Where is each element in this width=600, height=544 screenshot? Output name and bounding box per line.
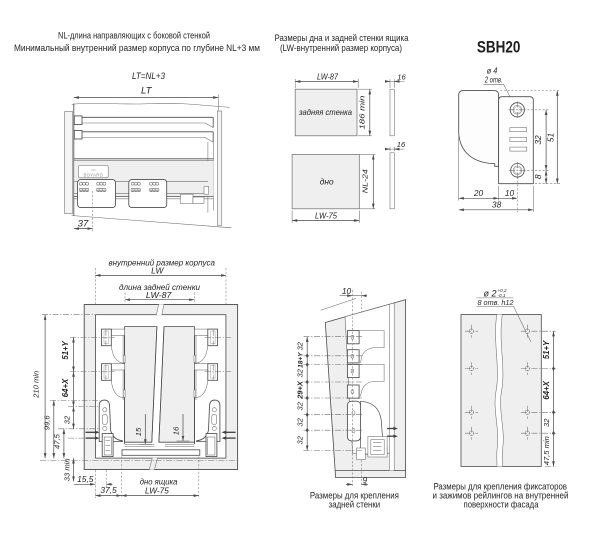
- svg-text:BOYARD: BOYARD: [83, 172, 103, 177]
- svg-text:LW-87: LW-87: [146, 290, 172, 300]
- svg-text:32: 32: [296, 435, 305, 444]
- svg-text:32: 32: [533, 135, 543, 145]
- svg-text:64+X: 64+X: [61, 378, 70, 397]
- svg-text:32: 32: [542, 418, 551, 427]
- svg-text:47,5: 47,5: [53, 433, 62, 449]
- svg-text:LW: LW: [151, 265, 164, 275]
- svg-text:9: 9: [362, 475, 367, 485]
- svg-text:186 min: 186 min: [358, 96, 367, 130]
- svg-text:33 min: 33 min: [63, 458, 72, 481]
- svg-text:32: 32: [296, 417, 305, 426]
- svg-text:37: 37: [78, 219, 89, 230]
- svg-text:29+X: 29+X: [296, 380, 305, 400]
- svg-text:10: 10: [505, 188, 515, 198]
- svg-text:2 отв.: 2 отв.: [484, 75, 503, 85]
- svg-text:32: 32: [63, 415, 72, 424]
- svg-text:(LW-внутренний размер корпуса): (LW-внутренний размер корпуса): [280, 43, 402, 53]
- svg-text:51: 51: [546, 133, 556, 142]
- svg-text:51+Y: 51+Y: [542, 340, 551, 359]
- svg-text:16: 16: [397, 72, 406, 81]
- svg-text:51+Y: 51+Y: [61, 340, 70, 359]
- svg-text:LT=NL+3: LT=NL+3: [132, 71, 166, 82]
- svg-text:16: 16: [172, 426, 181, 435]
- svg-text:LW-87: LW-87: [317, 72, 338, 82]
- svg-text:МЗ: МЗ: [91, 168, 95, 172]
- svg-text:15,5: 15,5: [77, 474, 94, 484]
- svg-text:47,5 min: 47,5 min: [542, 436, 551, 465]
- svg-text:18+Y: 18+Y: [298, 352, 305, 368]
- svg-text:99,6: 99,6: [43, 415, 52, 431]
- svg-text:64+X: 64+X: [542, 380, 551, 399]
- svg-text:32: 32: [296, 368, 305, 377]
- svg-text:дно: дно: [320, 177, 334, 187]
- svg-text:Минимальный внутренний размер: Минимальный внутренний размер корпуса по…: [14, 43, 260, 53]
- svg-text:15: 15: [134, 427, 143, 436]
- svg-text:поверхности фасада: поверхности фасада: [464, 499, 540, 509]
- svg-text:LT: LT: [141, 86, 153, 97]
- svg-text:32: 32: [296, 341, 305, 350]
- svg-text:32: 32: [296, 401, 305, 410]
- svg-text:задней стенки: задней стенки: [329, 499, 381, 509]
- svg-text:10: 10: [342, 286, 352, 296]
- svg-text:SBH20: SBH20: [477, 39, 521, 57]
- svg-text:NL-24: NL-24: [361, 169, 370, 193]
- svg-text:LW-75: LW-75: [145, 486, 169, 496]
- svg-text:Размеры дна и задней стенки ящ: Размеры дна и задней стенки ящика: [275, 33, 410, 43]
- svg-text:NL-длина направляющих с боково: NL-длина направляющих с боковой стенкой: [58, 31, 210, 41]
- svg-text:16: 16: [397, 140, 406, 149]
- svg-text:20: 20: [473, 188, 484, 198]
- svg-text:37,5: 37,5: [100, 485, 117, 495]
- svg-text:задняя стенка: задняя стенка: [298, 107, 352, 117]
- svg-text:38: 38: [492, 200, 502, 210]
- svg-text:8 отв. h12: 8 отв. h12: [478, 298, 515, 307]
- svg-text:8: 8: [533, 174, 543, 179]
- svg-text:LW-75: LW-75: [315, 211, 337, 221]
- svg-text:ø 2: ø 2: [484, 288, 497, 298]
- svg-text:210 min: 210 min: [32, 371, 41, 399]
